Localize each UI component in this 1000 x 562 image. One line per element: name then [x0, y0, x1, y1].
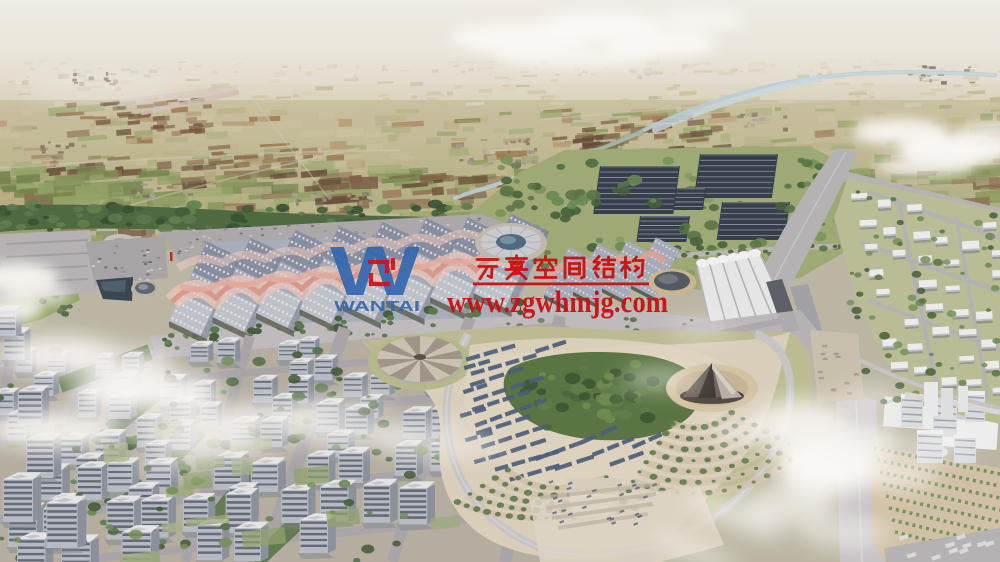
svg-text:WANTAI: WANTAI [334, 298, 420, 315]
svg-text:www.zgwhmjg.com: www.zgwhmjg.com [447, 284, 668, 319]
